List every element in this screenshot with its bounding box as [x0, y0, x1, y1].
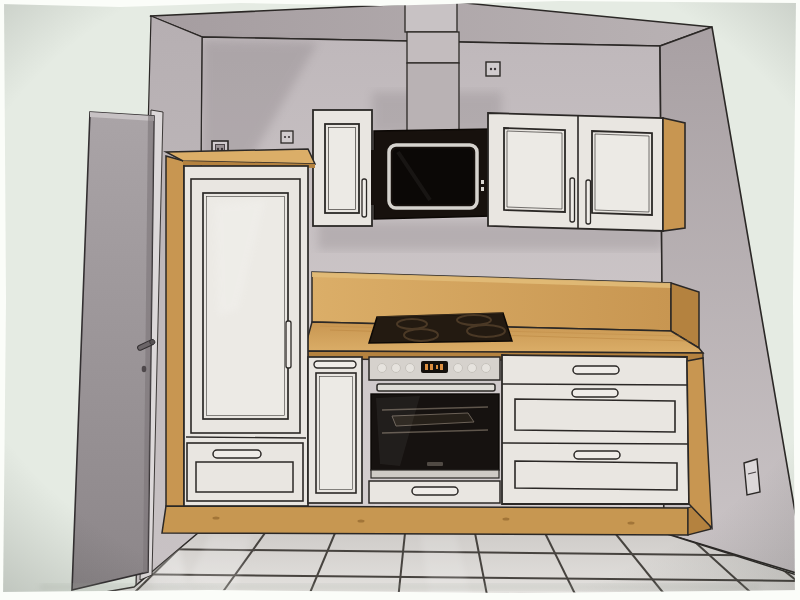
kitchen-design-rendering — [0, 0, 800, 600]
kitchen-rendering-photo — [0, 0, 800, 600]
paper-bottom-shadow — [40, 584, 760, 590]
vignette-overlay — [0, 0, 800, 600]
